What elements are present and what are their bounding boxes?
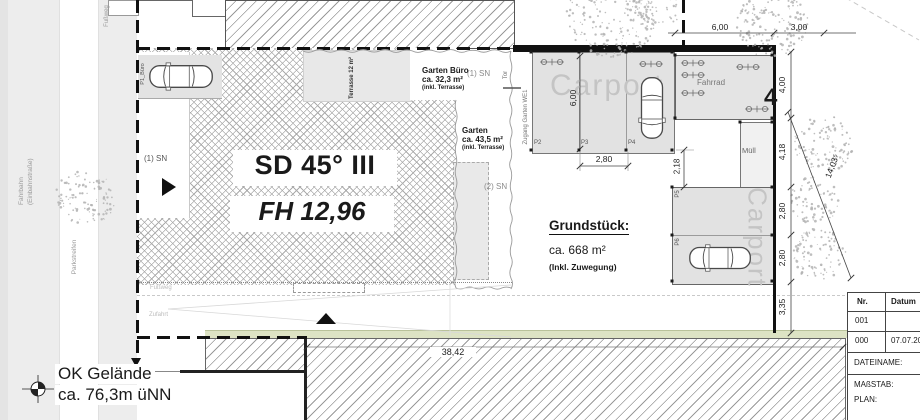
street-label-fussweg-top: Fußweg — [104, 0, 114, 41]
entrance-arrow-icon — [162, 178, 176, 196]
street-label-line1: Fahrbahn — [18, 135, 27, 205]
title-block-line — [848, 311, 920, 312]
house-number: 4 — [764, 84, 777, 112]
dim-chain-280b: 2,80 — [777, 238, 787, 278]
title-block-massstab: MAßSTAB: — [854, 380, 893, 389]
south-thick-line-h — [180, 370, 306, 373]
driveway-label-fussweg: Fußweg — [150, 285, 172, 291]
plot-title: Grundstück: — [549, 218, 629, 235]
garden-terrace-2 — [453, 162, 489, 280]
dim-chain-280a: 2,80 — [777, 191, 787, 231]
title-block-row2-nr: 000 — [855, 336, 868, 345]
gate-label: Tor — [503, 63, 509, 87]
south-building-hatch-a — [205, 338, 306, 372]
dim-diagonal: 14,03⁵ — [820, 146, 844, 187]
garden-title: Garten — [462, 126, 488, 135]
parking-label-p2: P2 — [534, 140, 541, 146]
title-block-line — [885, 293, 886, 352]
dim-chain-418: 4,18 — [777, 132, 787, 172]
title-block-plan: PLAN: — [854, 395, 877, 404]
title-block-col-datum: Datum — [891, 297, 916, 306]
street-label-parkstreifen: Parkstreifen — [71, 222, 81, 292]
garden-office-note: (inkl. Terrasse) — [422, 85, 464, 91]
plot-boundary-north — [137, 47, 513, 50]
garden-access-label: Zugang Garten WE1 — [523, 77, 529, 157]
neighbor-building-notch — [192, 0, 227, 17]
dim-carport-depth: 6,00 — [568, 78, 578, 118]
driveway-label-zufahrt: Zufahrt — [149, 312, 168, 318]
dim-chain-335: 3,35 — [777, 287, 787, 327]
carport-upper — [532, 52, 675, 154]
sn-mark-2: (2) SN — [484, 182, 507, 191]
sn-mark-left: (1) SN — [144, 154, 167, 163]
driveway-dashed-box — [293, 283, 365, 293]
terrace-office — [303, 50, 412, 102]
parking-pad-p1 — [138, 55, 222, 99]
parking-label-p4: P4 — [628, 140, 635, 146]
title-block-row2-datum: 07.07.201 — [891, 336, 920, 345]
parking-label-p6: P6 — [675, 231, 681, 253]
carport-lower-label: Carport — [742, 178, 773, 298]
dim-chain-400: 4,00 — [777, 65, 787, 105]
sn-mark-top: (1) SN — [467, 69, 490, 78]
carport-north-wall — [513, 45, 776, 52]
title-block-line — [848, 374, 920, 375]
parking-label-p1: P1_Büro — [140, 59, 146, 89]
title-block-dateiname: DATEINAME: — [854, 358, 902, 367]
title-block-row1-nr: 001 — [855, 316, 868, 325]
driveway-dashed-line — [137, 295, 920, 296]
site-plan-canvas: Carport Carport — [0, 0, 920, 420]
title-block: Nr. Datum 001 000 07.07.201 DATEINAME: M… — [847, 292, 920, 420]
bike-room-label: Fahrrad — [697, 78, 725, 87]
street-label-line2: (Einbahnstraße) — [27, 135, 36, 205]
plot-boundary-west — [136, 0, 139, 360]
garden-office-area: ca. 32,3 m² — [422, 75, 463, 84]
plot-area: ca. 668 m² — [549, 243, 606, 257]
dim-top-3: 3,00 — [779, 22, 819, 32]
title-block-line — [848, 331, 920, 332]
plot-boundary-northeast — [682, 0, 685, 47]
title-block-line — [848, 352, 920, 353]
waste-room-label: Müll — [742, 146, 756, 155]
road-edge-strip — [0, 0, 8, 420]
terrace-note: Terrasse 12 m² — [349, 53, 355, 103]
bike-room — [675, 55, 775, 120]
parking-label-p3: P3 — [581, 140, 588, 146]
roof-spec-label: SD 45° III — [233, 150, 397, 186]
garden-office-title: Garten Büro — [422, 66, 469, 75]
plot-boundary-south — [137, 336, 307, 339]
level-label-line2: ca. 76,3m üNN — [55, 385, 174, 405]
access-triangle-icon — [316, 313, 336, 324]
dim-top-6: 6,00 — [700, 22, 740, 32]
south-building-hatch-b — [305, 338, 846, 420]
plot-note: (Inkl. Zuwegung) — [549, 262, 617, 272]
garden-area: ca. 43,5 m² — [462, 135, 503, 144]
boundary-dashed-diagonal — [846, 0, 919, 40]
dim-gap: 2,18 — [673, 147, 682, 187]
dim-carport-width: 2,80 — [584, 154, 624, 164]
neighbor-building-hatched — [225, 0, 515, 49]
ridge-height-label: FH 12,96 — [230, 196, 394, 232]
road-lane — [59, 0, 99, 420]
title-block-col-nr: Nr. — [857, 297, 868, 306]
street-label-fahrbahn: Fahrbahn (Einbahnstraße) — [18, 135, 36, 205]
garden-note: (inkl. Terrasse) — [462, 145, 504, 151]
dim-frontage: 38,42 — [430, 347, 476, 357]
south-thick-line-v — [304, 338, 307, 420]
level-label-line1: OK Gelände — [55, 364, 155, 384]
